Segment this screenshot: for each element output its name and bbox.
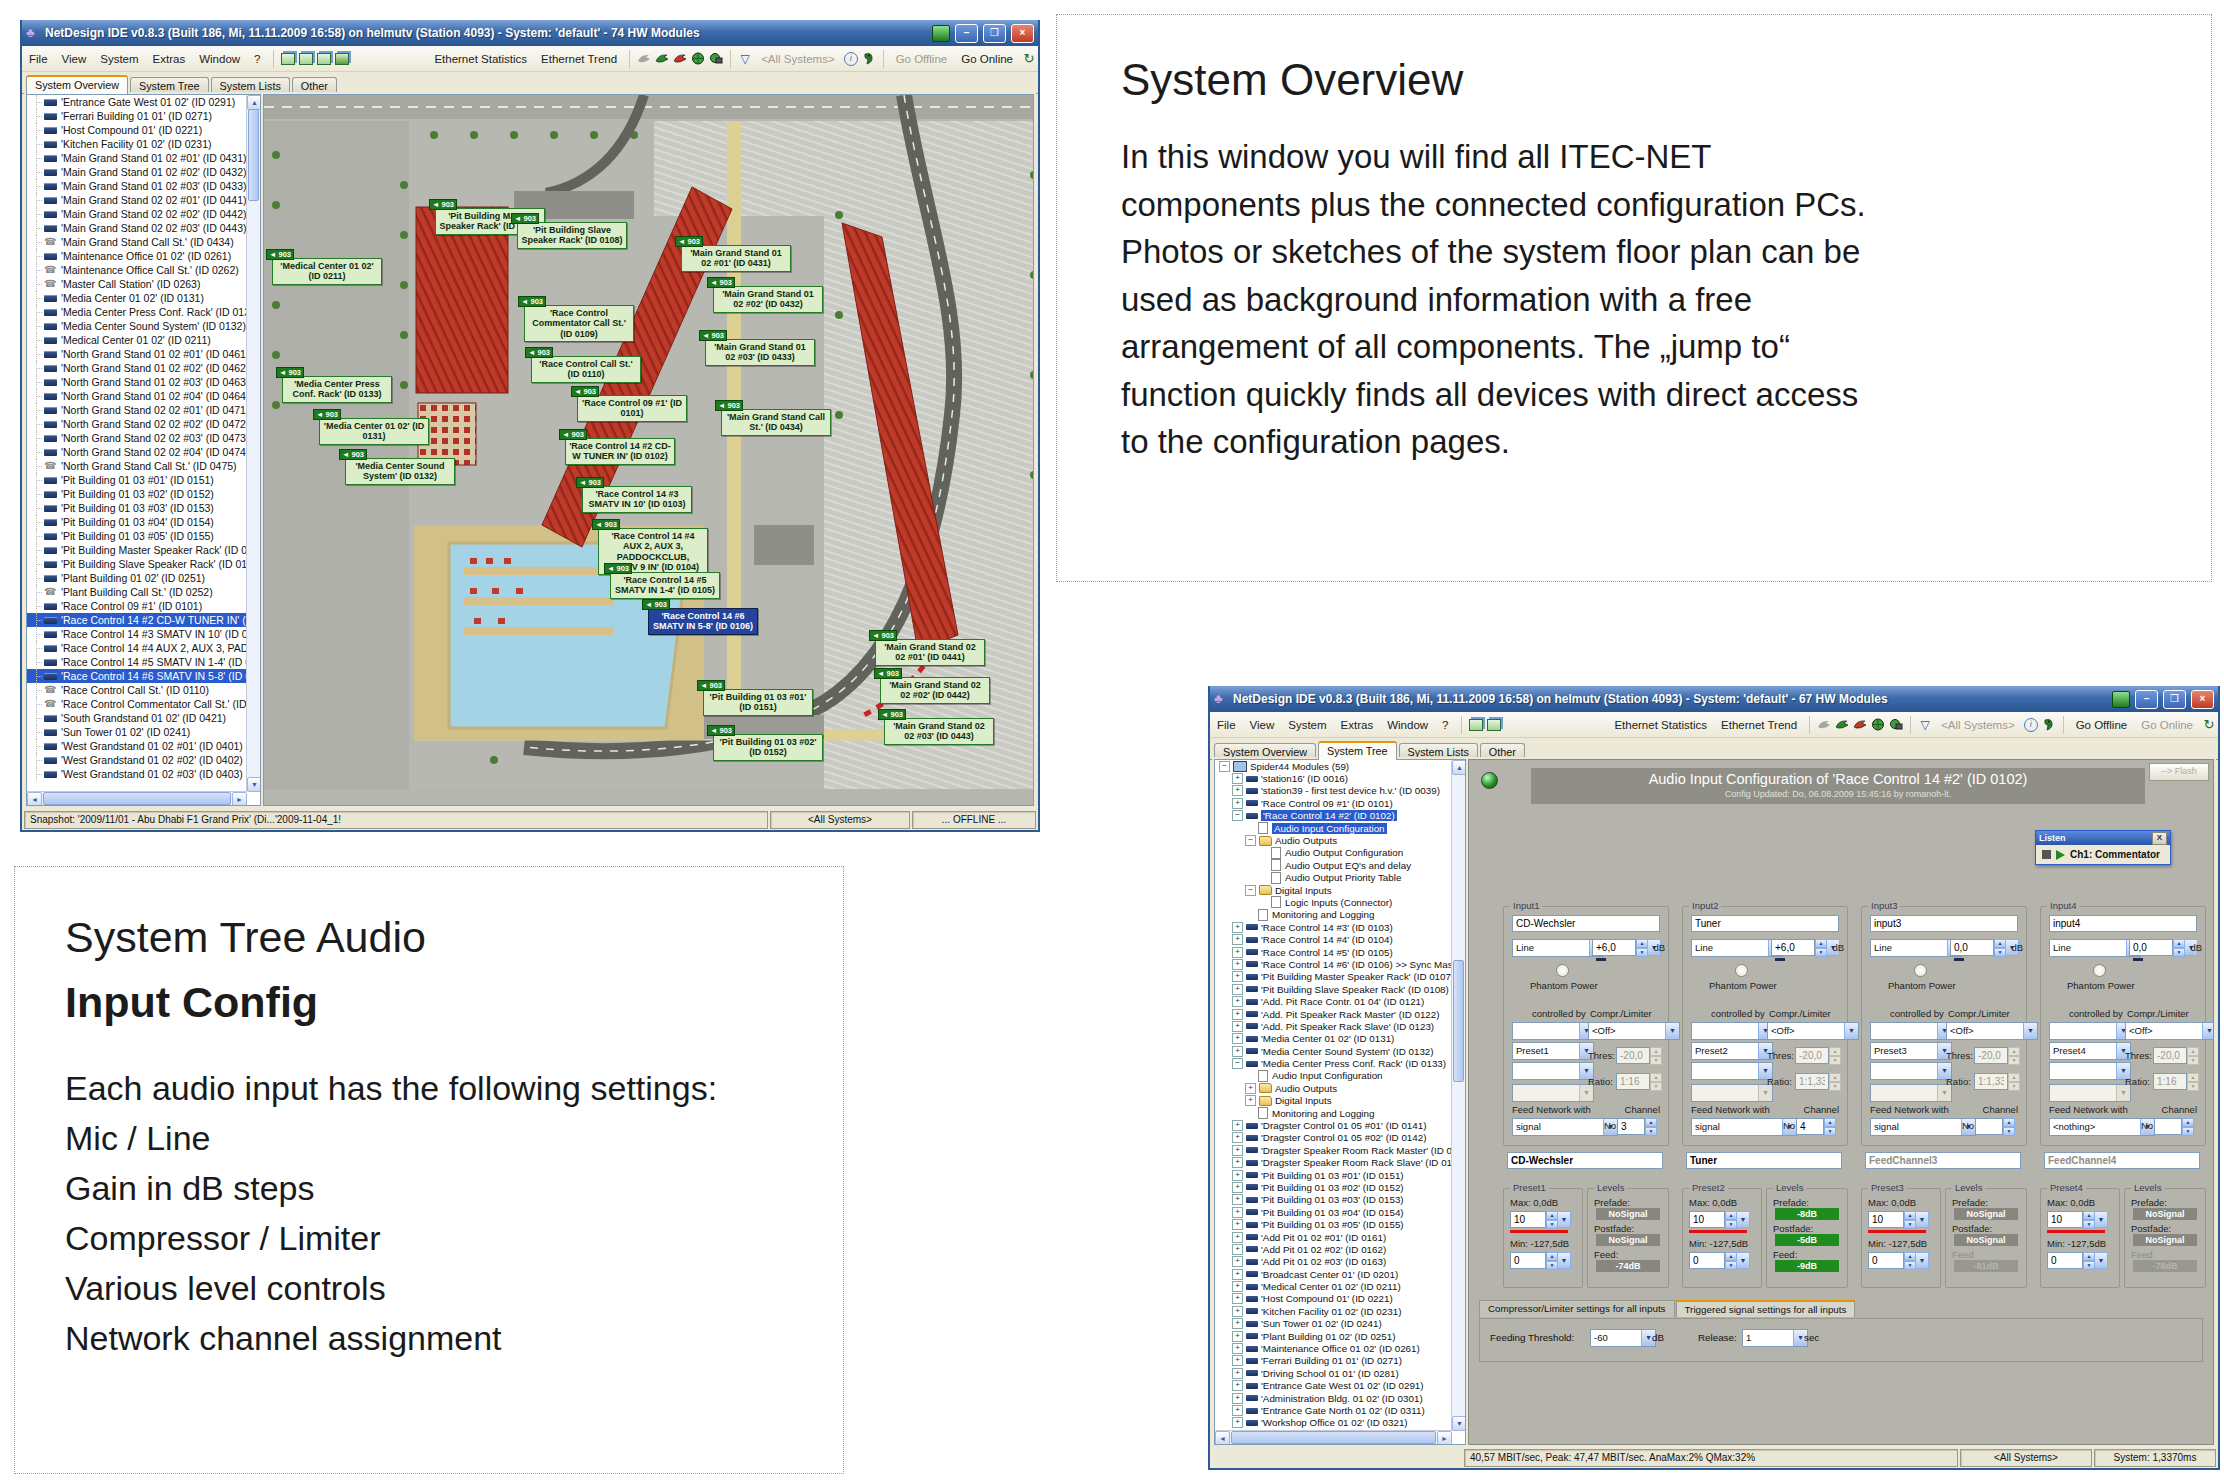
ethernet-statistics-button[interactable]: Ethernet Statistics — [1607, 717, 1714, 733]
menu-extras[interactable]: Extras — [146, 50, 193, 68]
tree-item[interactable]: +'Driving School 01 01' (ID 0281) — [1215, 1367, 1452, 1379]
input-type-select[interactable]: Line▼ — [1691, 939, 1783, 957]
close-button[interactable]: × — [2191, 690, 2214, 709]
expand-plus-icon[interactable]: + — [1232, 1145, 1243, 1156]
menu-system[interactable]: System — [93, 50, 145, 68]
all-systems-selector[interactable]: <All Systems> — [754, 51, 842, 67]
expand-plus-icon[interactable]: + — [1245, 1095, 1256, 1106]
channel-stepper[interactable]: ▲▼ — [1975, 1118, 2015, 1135]
expand-plus-icon[interactable]: + — [1232, 1269, 1243, 1280]
channel-stepper[interactable]: ▲▼ — [1796, 1118, 1836, 1135]
computer-icon — [1233, 761, 1247, 772]
stop-icon[interactable] — [2042, 850, 2051, 859]
tree-item[interactable]: +'Pit Building 01 03 #04' (ID 0154) — [1215, 1206, 1452, 1218]
tree-item[interactable]: 'North Grand Stand 01 02 #04' (ID 0464) — [27, 389, 247, 403]
gain-stepper[interactable]: ▲▼▼ — [2129, 939, 2198, 956]
expand-plus-icon[interactable]: + — [1232, 1194, 1243, 1205]
expand-plus-icon[interactable]: + — [1232, 1405, 1243, 1416]
tree-item[interactable]: Audio Output Priority Table — [1215, 872, 1452, 884]
controlled-by-select-2[interactable]: Preset3▼ — [1870, 1042, 1952, 1060]
tree-item[interactable]: −'Media Center Press Conf. Rack' (ID 013… — [1215, 1057, 1452, 1069]
tree-item[interactable]: −Spider44 Modules (59) — [1215, 760, 1452, 772]
globe-lock-icon[interactable] — [708, 51, 724, 66]
tree-item[interactable]: +'Pit Building Slave Speaker Rack' (ID 0… — [1215, 983, 1452, 995]
tree-item[interactable]: Monitoring and Logging — [1215, 1107, 1452, 1119]
expand-plus-icon[interactable]: + — [1232, 1281, 1243, 1292]
tree-item[interactable]: +'Race Control 14 #5' (ID 0105) — [1215, 946, 1452, 958]
controlled-by-select-3[interactable]: ▼ — [1691, 1062, 1773, 1080]
map-device-label[interactable]: ◄ 903'Race Control 14 #3 SMATV IN 10' (I… — [582, 486, 692, 513]
info-icon[interactable]: i — [2023, 717, 2039, 732]
expand-plus-icon[interactable]: + — [1232, 785, 1243, 796]
feed-channel-name-field[interactable] — [1865, 1152, 2021, 1169]
tree-item[interactable]: +Digital Inputs — [1215, 1095, 1452, 1107]
go-offline-button[interactable]: Go Offline — [889, 51, 955, 67]
map-device-label[interactable]: ◄ 903'Pit Building 01 03 #01' (ID 0151) — [703, 689, 813, 716]
tree-item[interactable]: 'Media Center 01 02' (ID 0131) — [27, 291, 247, 305]
restore-button[interactable]: ❒ — [983, 24, 1006, 43]
expand-plus-icon[interactable]: + — [1232, 1009, 1243, 1020]
expand-plus-icon[interactable]: + — [1232, 1380, 1243, 1391]
preset-max-stepper[interactable]: ▲▼▼ — [1689, 1211, 1750, 1228]
phantom-power-radio[interactable] — [2093, 964, 2106, 977]
compressor-select[interactable]: <Off>▼ — [1767, 1022, 1859, 1040]
map-device-label[interactable]: ◄ 903'Pit Building Slave Speaker Rack' (… — [517, 222, 627, 249]
collapse-minus-icon[interactable]: − — [1232, 1058, 1243, 1069]
globe-lock-icon[interactable] — [1888, 717, 1904, 732]
scroll-down-icon[interactable]: ▼ — [1452, 1416, 1466, 1431]
expand-plus-icon[interactable]: + — [1232, 1232, 1243, 1243]
expand-plus-icon[interactable]: + — [1232, 971, 1243, 982]
menu-window[interactable]: Window — [192, 50, 247, 68]
expand-plus-icon[interactable]: + — [1245, 1083, 1256, 1094]
rack-icon — [44, 365, 57, 372]
map-device-label[interactable]: ◄ 903'Main Grand Stand 01 02 #01' (ID 04… — [681, 245, 791, 272]
network-view-icon[interactable] — [316, 51, 332, 66]
window-new-icon[interactable] — [1468, 717, 1484, 732]
expand-plus-icon[interactable]: + — [1232, 1170, 1243, 1181]
expand-plus-icon[interactable]: + — [1232, 959, 1243, 970]
map-device-label[interactable]: ◄ 903'Race Control Call St.' (ID 0110) — [531, 356, 641, 383]
tree-item[interactable]: +'Maintenance Office 01 02' (ID 0261) — [1215, 1342, 1452, 1354]
tree-item[interactable]: 'Host Compound 01' (ID 0221) — [27, 123, 247, 137]
expand-plus-icon[interactable]: + — [1232, 1318, 1243, 1329]
horizontal-scrollbar[interactable]: ◄ ► — [27, 791, 247, 805]
tree-item[interactable]: 'Pit Building 01 03 #03' (ID 0153) — [27, 501, 247, 515]
expand-plus-icon[interactable]: + — [1232, 1306, 1243, 1317]
flash-button[interactable]: --> Flash — [2149, 763, 2209, 781]
tree-item[interactable]: +'Medical Center 01 02' (ID 0211) — [1215, 1280, 1452, 1292]
tree-item[interactable]: 'Medical Center 01 02' (ID 0211) — [27, 333, 247, 347]
menu-help[interactable]: ? — [247, 50, 267, 68]
tree-item[interactable]: 'Pit Building Master Speaker Rack' (ID 0… — [27, 543, 247, 557]
tree-item[interactable]: 'Ferrari Building 01 01' (ID 0271) — [27, 109, 247, 123]
tree-item[interactable]: +'Plant Building 01 02' (ID 0251) — [1215, 1330, 1452, 1342]
collapse-minus-icon[interactable]: − — [1219, 761, 1230, 772]
tree-item[interactable]: −'Race Control 14 #2' (ID 0102) — [1215, 810, 1452, 822]
tree-item[interactable]: 'Race Control 14 #4 AUX 2, AUX 3, PADDOC… — [27, 641, 247, 655]
tree-item[interactable]: +'Race Control 09 #1' (ID 0101) — [1215, 797, 1452, 809]
go-online-button[interactable]: Go Online — [2134, 717, 2200, 733]
feed-select[interactable]: signal▼ — [1870, 1118, 1976, 1136]
map-device-label[interactable]: ◄ 903'Media Center Press Conf. Rack' (ID… — [282, 376, 392, 403]
tree-item[interactable]: 'Kitchen Facility 01 02' (ID 0231) — [27, 137, 247, 151]
tree-item[interactable]: 'Main Grand Stand 01 02 #03' (ID 0433) — [27, 179, 247, 193]
expand-plus-icon[interactable]: + — [1232, 773, 1243, 784]
all-systems-selector[interactable]: <All Systems> — [1934, 717, 2022, 733]
tree-item[interactable]: 'Pit Building Slave Speaker Rack' (ID 01… — [27, 557, 247, 571]
expand-plus-icon[interactable]: + — [1232, 1033, 1243, 1044]
expand-plus-icon[interactable]: + — [1232, 1343, 1243, 1354]
collapse-minus-icon[interactable]: − — [1245, 835, 1256, 846]
tree-item[interactable]: +'Broadcast Center 01' (ID 0201) — [1215, 1268, 1452, 1280]
tree-item[interactable]: +'Pit Building 01 03 #03' (ID 0153) — [1215, 1194, 1452, 1206]
scroll-up-icon[interactable]: ▲ — [247, 95, 261, 110]
upload-red-bird-icon[interactable] — [672, 51, 688, 66]
tree-item[interactable]: Logic Inputs (Connector) — [1215, 896, 1452, 908]
tree-item[interactable]: +'Add. Pit Race Contr. 01 04' (ID 0121) — [1215, 995, 1452, 1007]
input-name-field[interactable] — [1512, 915, 1660, 932]
floor-plan-map[interactable]: ◄ 903'Pit Building Master Speaker Rack' … — [263, 94, 1034, 806]
tree-item[interactable]: 'Media Center Press Conf. Rack' (ID 0133… — [27, 305, 247, 319]
feed-select[interactable]: <nothing>▼ — [2049, 1118, 2155, 1136]
window-cascade-icon[interactable] — [298, 51, 314, 66]
feeding-threshold-select[interactable]: -60▼ — [1590, 1329, 1656, 1347]
tree-item[interactable]: Audio Output Configuration — [1215, 847, 1452, 859]
tree-item[interactable]: +'Race Control 14 #4' (ID 0104) — [1215, 933, 1452, 945]
preset-min-stepper[interactable]: ▲▼▼ — [1510, 1252, 1571, 1269]
tree-item[interactable]: 'Media Center Sound System' (ID 0132) — [27, 319, 247, 333]
menu-system[interactable]: System — [1281, 716, 1333, 734]
vertical-scrollbar[interactable]: ▲ ▼ — [246, 95, 260, 792]
tree-item[interactable]: 'Race Control 14 #3 SMATV IN 10' (ID 010… — [27, 627, 247, 641]
scroll-left-icon[interactable]: ◄ — [1215, 1431, 1230, 1445]
feed-channel-name-field[interactable] — [1507, 1152, 1663, 1169]
rack-icon — [44, 211, 57, 218]
menu-view[interactable]: View — [1243, 716, 1282, 734]
download-green-bird-icon[interactable] — [1834, 717, 1850, 732]
tree-item[interactable]: 'Race Control 09 #1' (ID 0101) — [27, 599, 247, 613]
tree-item[interactable]: +'Pit Building 01 03 #05' (ID 0155) — [1215, 1218, 1452, 1230]
gain-stepper[interactable]: ▲▼▼ — [1592, 939, 1661, 956]
expand-plus-icon[interactable]: + — [1232, 1021, 1243, 1032]
expand-plus-icon[interactable]: + — [1232, 1219, 1243, 1230]
tree-item[interactable]: 'Main Grand Stand 01 02 #02' (ID 0432) — [27, 165, 247, 179]
expand-plus-icon[interactable]: + — [1232, 1207, 1243, 1218]
controlled-by-select-3[interactable]: ▼ — [1870, 1062, 1952, 1080]
tree-item[interactable]: 'Maintenance Office 01 02' (ID 0261) — [27, 249, 247, 263]
controlled-by-select-1[interactable]: ▼ — [2049, 1022, 2131, 1040]
close-button[interactable]: × — [1011, 24, 1034, 43]
expand-plus-icon[interactable]: + — [1232, 1132, 1243, 1143]
expand-plus-icon[interactable]: + — [1232, 1368, 1243, 1379]
preset-min-stepper[interactable]: ▲▼▼ — [1868, 1252, 1929, 1269]
expand-plus-icon[interactable]: + — [1232, 984, 1243, 995]
expand-plus-icon[interactable]: + — [1232, 1157, 1243, 1168]
map-device-label[interactable]: ◄ 903'Main Grand Stand 01 02 #02' (ID 04… — [713, 286, 823, 313]
tree-item[interactable]: 'Pit Building 01 03 #05' (ID 0155) — [27, 529, 247, 543]
controlled-by-select-2[interactable]: Preset2▼ — [1691, 1042, 1773, 1060]
feed-channel-name-field[interactable] — [1686, 1152, 1842, 1169]
collapse-minus-icon[interactable]: − — [1232, 810, 1243, 821]
tree-item[interactable]: 'West Grandstand 01 02 #01' (ID 0401) — [27, 739, 247, 753]
horizontal-scrollbar[interactable]: ◄ ► — [1215, 1430, 1452, 1444]
channel-stepper[interactable]: ▲▼ — [2154, 1118, 2194, 1135]
expand-plus-icon[interactable]: + — [1232, 1182, 1243, 1193]
tree-item[interactable]: +'Race Control 14 #6' (ID 0106) >> Sync … — [1215, 958, 1452, 970]
ethernet-trend-button[interactable]: Ethernet Trend — [534, 51, 624, 67]
tree-item[interactable]: +'Race Control 14 #3' (ID 0103) — [1215, 921, 1452, 933]
tree-item[interactable]: Audio Output EQ's and delay — [1215, 859, 1452, 871]
tree-item[interactable]: −Audio Outputs — [1215, 834, 1452, 846]
tab-compressor-limiter-settings-for-all-inputs[interactable]: Compressor/Limiter settings for all inpu… — [1479, 1300, 1675, 1317]
compressor-select[interactable]: <Off>▼ — [1588, 1022, 1680, 1040]
menu-extras[interactable]: Extras — [1334, 716, 1381, 734]
tree-item[interactable]: +'Add Pit 01 02 #03' (ID 0163) — [1215, 1256, 1452, 1268]
expand-plus-icon[interactable]: + — [1232, 1355, 1243, 1366]
expand-plus-icon[interactable]: + — [1232, 1293, 1243, 1304]
tree-item[interactable]: 'Plant Building 01 02' (ID 0251) — [27, 571, 247, 585]
title-bar[interactable]: ♣ NetDesign IDE v0.8.3 (Built 186, Mi, 1… — [1210, 686, 2218, 712]
restore-button[interactable]: ❒ — [2163, 690, 2186, 709]
tree-item[interactable]: +Audio Outputs — [1215, 1082, 1452, 1094]
tree-item[interactable]: +'station39 - first test device h.v.' (I… — [1215, 785, 1452, 797]
expand-plus-icon[interactable]: + — [1232, 934, 1243, 945]
network-view-icon[interactable] — [1486, 717, 1502, 732]
menu-file[interactable]: File — [22, 50, 55, 68]
parrot-icon[interactable] — [2041, 717, 2057, 732]
tree-item[interactable]: +'Dragster Control 01 05 #02' (ID 0142) — [1215, 1132, 1452, 1144]
expand-plus-icon[interactable]: + — [1232, 1120, 1243, 1131]
info-icon[interactable]: i — [843, 51, 859, 66]
preset-min-stepper[interactable]: ▲▼▼ — [2047, 1252, 2108, 1269]
close-icon[interactable]: X — [2152, 832, 2167, 845]
controlled-by-select-2[interactable]: Preset1▼ — [1512, 1042, 1594, 1060]
upload-red-bird-icon[interactable] — [1852, 717, 1868, 732]
tree-item[interactable]: ☎'Master Call Station' (ID 0263) — [27, 277, 247, 291]
go-online-button[interactable]: Go Online — [954, 51, 1020, 67]
tree-item[interactable]: ☎'Maintenance Office Call St.' (ID 0262) — [27, 263, 247, 277]
tree-item[interactable]: Audio Input Configuration — [1215, 822, 1452, 834]
title-bar[interactable]: ♣ NetDesign IDE v0.8.3 (Built 186, Mi, 1… — [22, 20, 1038, 46]
expand-plus-icon[interactable]: + — [1232, 798, 1243, 809]
ethernet-trend-button[interactable]: Ethernet Trend — [1714, 717, 1804, 733]
vertical-scrollbar[interactable]: ▲ ▼ — [1451, 760, 1465, 1431]
tree-item[interactable]: 'Sun Tower 01 02' (ID 0241) — [27, 725, 247, 739]
tree-item[interactable]: ☎'North Grand Stand Call St.' (ID 0475) — [27, 459, 247, 473]
scroll-right-icon[interactable]: ► — [1437, 1431, 1452, 1445]
tree-item[interactable]: +'Media Center Sound System' (ID 0132) — [1215, 1045, 1452, 1057]
map-device-label[interactable]: ◄ 903'Medical Center 01 02' (ID 0211) — [272, 258, 382, 285]
phantom-power-radio[interactable] — [1914, 964, 1927, 977]
menu-window[interactable]: Window — [1380, 716, 1435, 734]
input-type-select[interactable]: Line▼ — [1512, 939, 1604, 957]
controlled-by-select-1[interactable]: ▼ — [1691, 1022, 1773, 1040]
tree-item[interactable]: ☎'Plant Building Call St.' (ID 0252) — [27, 585, 247, 599]
expand-plus-icon[interactable]: + — [1232, 1331, 1243, 1342]
map-device-label[interactable]: ◄ 903'Race Control 14 #6 SMATV IN 5-8' (… — [648, 608, 758, 635]
expand-plus-icon[interactable]: + — [1232, 1393, 1243, 1404]
filter-funnel-icon[interactable]: ▽ — [737, 51, 753, 66]
controlled-by-select-1[interactable]: ▼ — [1870, 1022, 1952, 1040]
tree-item[interactable]: 'Main Grand Stand 02 02 #03' (ID 0443) — [27, 221, 247, 235]
expand-plus-icon[interactable]: + — [1232, 996, 1243, 1007]
map-device-label[interactable]: ◄ 903'Main Grand Stand Call St.' (ID 043… — [721, 409, 831, 436]
gain-stepper[interactable]: ▲▼▼ — [1771, 939, 1840, 956]
tree-item[interactable]: +'Pit Building 01 03 #01' (ID 0151) — [1215, 1169, 1452, 1181]
compressor-select[interactable]: <Off>▼ — [1946, 1022, 2038, 1040]
tab-system-tree[interactable]: System Tree — [1318, 741, 1397, 760]
tree-item[interactable]: +'Pit Building 01 03 #02' (ID 0152) — [1215, 1181, 1452, 1193]
feed-select[interactable]: signal▼ — [1691, 1118, 1797, 1136]
tree-item[interactable]: +'Add Pit 01 02 #02' (ID 0162) — [1215, 1243, 1452, 1255]
map-device-label[interactable]: ◄ 903'Main Grand Stand 02 02 #02' (ID 04… — [880, 677, 990, 704]
gain-stepper[interactable]: ▲▼▼ — [1950, 939, 2019, 956]
tree-item[interactable]: 'North Grand Stand 02 02 #02' (ID 0472) — [27, 417, 247, 431]
tree-item[interactable]: 'Main Grand Stand 01 02 #01' (ID 0431) — [27, 151, 247, 165]
menu-view[interactable]: View — [55, 50, 94, 68]
tree-item[interactable]: 'West Grandstand 01 02 #02' (ID 0402) — [27, 753, 247, 767]
tree-item[interactable]: 'Main Grand Stand 02 02 #02' (ID 0442) — [27, 207, 247, 221]
compressor-select[interactable]: <Off>▼ — [2125, 1022, 2214, 1040]
feed-channel-name-field[interactable] — [2044, 1152, 2200, 1169]
expand-plus-icon[interactable]: + — [1232, 922, 1243, 933]
tree-item[interactable]: 'Race Control 14 #6 SMATV IN 5-8' (ID 01… — [27, 669, 247, 683]
tree-item[interactable]: 'North Grand Stand 02 02 #03' (ID 0473) — [27, 431, 247, 445]
map-device-label[interactable]: ◄ 903'Main Grand Stand 02 02 #03' (ID 04… — [884, 718, 994, 745]
tree-item[interactable]: +'Add. Pit Speaker Rack Slave' (ID 0123) — [1215, 1020, 1452, 1032]
minimize-button[interactable]: – — [955, 24, 978, 43]
globe-headset-icon[interactable] — [690, 51, 706, 66]
minimize-button[interactable]: – — [2135, 690, 2158, 709]
tree-item[interactable]: +'Entrance Gate West 01 02' (ID 0291) — [1215, 1380, 1452, 1392]
map-device-label[interactable]: ◄ 903'Race Control Commentator Call St.'… — [524, 305, 634, 342]
tree-item[interactable]: +'Kitchen Facility 01 02' (ID 0231) — [1215, 1305, 1452, 1317]
controlled-by-select-2[interactable]: Preset4▼ — [2049, 1042, 2131, 1060]
tree-item[interactable]: +'Dragster Speaker Room Rack Master' (ID… — [1215, 1144, 1452, 1156]
tree-item[interactable]: +'Ferrari Building 01 01' (ID 0271) — [1215, 1355, 1452, 1367]
map-device-label[interactable]: ◄ 903'Media Center Sound System' (ID 013… — [345, 458, 455, 485]
preset-max-stepper[interactable]: ▲▼▼ — [1510, 1211, 1571, 1228]
input-name-field[interactable] — [2049, 915, 2197, 932]
tree-item[interactable]: 'North Grand Stand 01 02 #02' (ID 0462) — [27, 361, 247, 375]
map-view-icon[interactable] — [334, 51, 350, 66]
play-icon[interactable] — [2056, 850, 2065, 860]
tree-item[interactable]: +'Media Center 01 02' (ID 0131) — [1215, 1033, 1452, 1045]
tree-item[interactable]: +'Dragster Control 01 05 #01' (ID 0141) — [1215, 1119, 1452, 1131]
parrot-icon[interactable] — [861, 51, 877, 66]
refresh-icon[interactable]: ↻ — [2201, 717, 2217, 732]
expand-plus-icon[interactable]: + — [1232, 1417, 1243, 1428]
expand-plus-icon[interactable]: + — [1232, 947, 1243, 958]
tree-item[interactable]: Audio Input Configuration — [1215, 1070, 1452, 1082]
map-device-label[interactable]: ◄ 903'Main Grand Stand 02 02 #01' (ID 04… — [875, 639, 985, 666]
map-device-label[interactable]: ◄ 903'Main Grand Stand 01 02 #03' (ID 04… — [705, 339, 815, 366]
channel-stepper[interactable]: ▲▼ — [1617, 1118, 1657, 1135]
tree-item[interactable]: +'Pit Building Master Speaker Rack' (ID … — [1215, 971, 1452, 983]
scroll-right-icon[interactable]: ► — [232, 792, 247, 806]
scroll-up-icon[interactable]: ▲ — [1452, 760, 1466, 775]
collapse-minus-icon[interactable]: − — [1245, 885, 1256, 896]
tree-item[interactable]: −Digital Inputs — [1215, 884, 1452, 896]
tree-item[interactable]: ☎'Race Control Call St.' (ID 0110) — [27, 683, 247, 697]
tree-item[interactable]: ☎'Main Grand Stand Call St.' (ID 0434) — [27, 235, 247, 249]
map-device-label[interactable]: ◄ 903'Race Control 14 #5 SMATV IN 1-4' (… — [610, 572, 720, 599]
scroll-down-icon[interactable]: ▼ — [247, 777, 261, 792]
controlled-by-select-3[interactable]: ▼ — [1512, 1062, 1594, 1080]
phantom-power-radio[interactable] — [1735, 964, 1748, 977]
preset-max-stepper[interactable]: ▲▼▼ — [2047, 1211, 2108, 1228]
filter-funnel-icon[interactable]: ▽ — [1917, 717, 1933, 732]
preset-min-stepper[interactable]: ▲▼▼ — [1689, 1252, 1750, 1269]
feed-select[interactable]: signal▼ — [1512, 1118, 1618, 1136]
tree-item[interactable]: 'Pit Building 01 03 #04' (ID 0154) — [27, 515, 247, 529]
preset-max-stepper[interactable]: ▲▼▼ — [1868, 1211, 1929, 1228]
tree-item[interactable]: 'North Grand Stand 01 02 #03' (ID 0463) — [27, 375, 247, 389]
tab-system-overview[interactable]: System Overview — [26, 75, 128, 94]
tree-item[interactable]: 'North Grand Stand 01 02 #01' (ID 0461) — [27, 347, 247, 361]
globe-headset-icon[interactable] — [1870, 717, 1886, 732]
map-device-label[interactable]: ◄ 903'Pit Building 01 03 #02' (ID 0152) — [713, 734, 823, 761]
tree-item[interactable]: 'Pit Building 01 03 #02' (ID 0152) — [27, 487, 247, 501]
tree-item[interactable]: 'Race Control 14 #2 CD-W TUNER IN' (ID 0… — [27, 613, 247, 627]
release-select[interactable]: 1▼ — [1742, 1329, 1808, 1347]
tree-item[interactable]: +'Workshop Office 01 02' (ID 0321) — [1215, 1417, 1452, 1429]
tree-item[interactable]: 'North Grand Stand 02 02 #04' (ID 0474) — [27, 445, 247, 459]
controlled-by-select-1[interactable]: ▼ — [1512, 1022, 1594, 1040]
tree-item[interactable]: +'Dragster Speaker Room Rack Slave' (ID … — [1215, 1157, 1452, 1169]
phantom-power-radio[interactable] — [1556, 964, 1569, 977]
tree-item[interactable]: Monitoring and Logging — [1215, 909, 1452, 921]
expand-plus-icon[interactable]: + — [1232, 1046, 1243, 1057]
expand-plus-icon[interactable]: + — [1232, 1256, 1243, 1267]
download-green-bird-icon[interactable] — [654, 51, 670, 66]
map-device-label[interactable]: ◄ 903'Race Control 09 #1' (ID 0101) — [577, 395, 687, 422]
tree-item[interactable]: +'Sun Tower 01 02' (ID 0241) — [1215, 1318, 1452, 1330]
expand-plus-icon[interactable]: + — [1232, 1244, 1243, 1255]
tree-item[interactable]: 'Main Grand Stand 02 02 #01' (ID 0441) — [27, 193, 247, 207]
tree-item[interactable]: 'Race Control 14 #5 SMATV IN 1-4' (ID 01… — [27, 655, 247, 669]
refresh-icon[interactable]: ↻ — [1021, 51, 1037, 66]
input-type-select[interactable]: Line▼ — [2049, 939, 2141, 957]
go-offline-button[interactable]: Go Offline — [2069, 717, 2135, 733]
input-type-select[interactable]: Line▼ — [1870, 939, 1962, 957]
controlled-by-select-3[interactable]: ▼ — [2049, 1062, 2131, 1080]
tree-item[interactable]: +'Administration Bldg. 01 02' (ID 0301) — [1215, 1392, 1452, 1404]
tree-item[interactable]: +'Entrance Gate North 01 02' (ID 0311) — [1215, 1404, 1452, 1416]
tree-item[interactable]: ☎'Race Control Commentator Call St.' (ID… — [27, 697, 247, 711]
scroll-left-icon[interactable]: ◄ — [27, 792, 42, 806]
tree-item[interactable]: +'station16' (ID 0016) — [1215, 772, 1452, 784]
tab-triggered-signal-settings-for-all-inputs[interactable]: Triggered signal settings for all inputs — [1676, 1300, 1856, 1317]
map-device-label[interactable]: ◄ 903'Media Center 01 02' (ID 0131) — [319, 418, 429, 445]
tree-item[interactable]: +'Add Pit 01 02 #01' (ID 0161) — [1215, 1231, 1452, 1243]
ethernet-statistics-button[interactable]: Ethernet Statistics — [427, 51, 534, 67]
menu-file[interactable]: File — [1210, 716, 1243, 734]
tree-item[interactable]: 'South Grandstand 01 02' (ID 0421) — [27, 711, 247, 725]
tree-item[interactable]: 'West Grandstand 01 02 #03' (ID 0403) — [27, 767, 247, 781]
tree-item[interactable]: 'Entrance Gate West 01 02' (ID 0291) — [27, 95, 247, 109]
tree-item[interactable]: +'Add. Pit Speaker Rack Master' (ID 0122… — [1215, 1008, 1452, 1020]
input-name-field[interactable] — [1870, 915, 2018, 932]
input-name-field[interactable] — [1691, 915, 1839, 932]
menu-help[interactable]: ? — [1435, 716, 1455, 734]
map-device-label[interactable]: ◄ 903'Race Control 14 #2 CD-W TUNER IN' … — [565, 438, 675, 465]
tree-item[interactable]: 'Pit Building 01 03 #01' (ID 0151) — [27, 473, 247, 487]
tree-item[interactable]: +'Host Compound 01' (ID 0221) — [1215, 1293, 1452, 1305]
window-new-icon[interactable] — [280, 51, 296, 66]
tree-item[interactable]: 'North Grand Stand 02 02 #01' (ID 0471) — [27, 403, 247, 417]
